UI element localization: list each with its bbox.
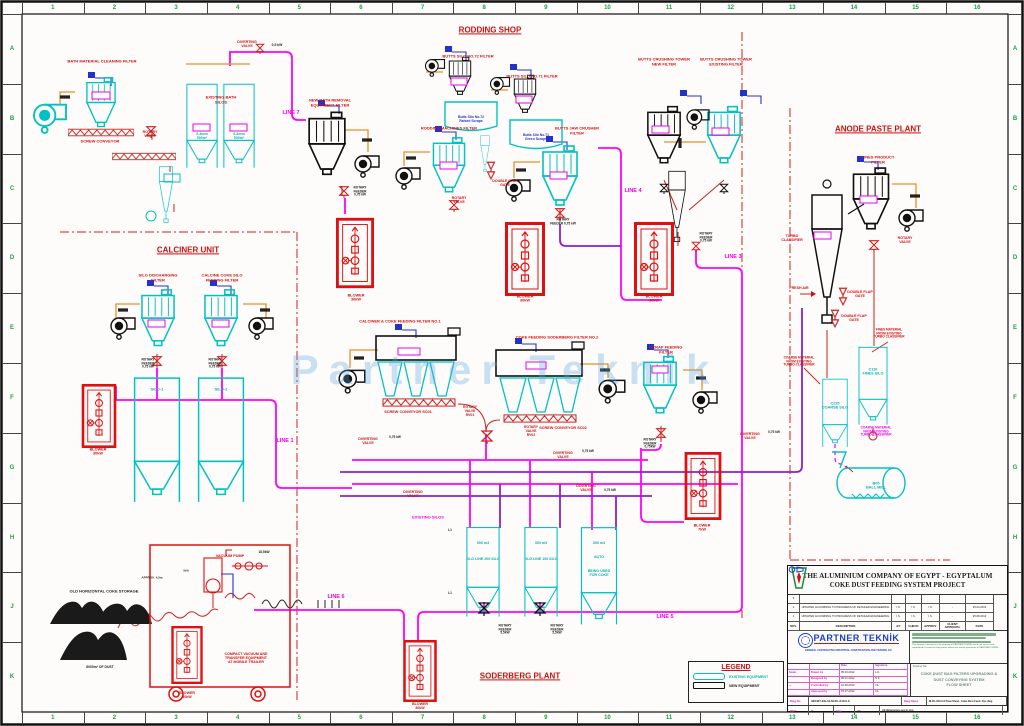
- pipe-orange: [60, 64, 916, 390]
- anode-paste-plant: [812, 168, 923, 498]
- revision-cell: [800, 595, 892, 604]
- revision-cell: 3: [788, 595, 800, 604]
- revision-cell: [892, 595, 906, 604]
- project-name: COKE DUST FEEDING SYSTEM PROJECT: [790, 582, 1005, 589]
- signature-cell: I.S.: [874, 690, 908, 696]
- drawing-sheet: Partner Teknik RODDING SHOPANODE PASTE P…: [0, 0, 1024, 726]
- bath-screw-conveyors: [68, 127, 176, 160]
- revision-cell: [922, 595, 940, 604]
- revision-cell: CLIENT APPROVAL: [940, 622, 966, 631]
- legend-item-label: NEW EQUIPMENT: [729, 684, 760, 688]
- signature-cell: [788, 690, 810, 696]
- revision-cell: I.S.: [892, 604, 906, 613]
- revision-cell: [906, 595, 922, 604]
- existing-swatch: [693, 673, 725, 680]
- revision-cell: 25.08.2012: [966, 613, 994, 622]
- new-swatch: [693, 682, 725, 689]
- pipe-black-wavy: [262, 600, 339, 608]
- revision-cell: CHECK: [906, 622, 922, 631]
- rodding-machines-filter: [396, 136, 495, 212]
- calciner-unit: [111, 290, 273, 502]
- revision-table: 32UPDATED ACCORDING TO PROGRESS OF DETAI…: [788, 595, 1007, 631]
- signature-table: DateSignatureScaleDrawn by05.03.2012L.K.…: [788, 664, 911, 696]
- firm-subtitle: GENERAL CONTRACTING INDUSTRIAL CONSTRUCT…: [790, 649, 907, 652]
- legend-item-label: EXISTING EQUIPMENT: [729, 675, 768, 679]
- signature-cell: 15.07.2012: [840, 690, 874, 696]
- dwg-name-label: Dwg Name: [902, 697, 927, 705]
- company-name: THE ALUMINIUM COMPANY OF EGYPT - EGYPTAL…: [790, 572, 1005, 580]
- revision-cell: REV.: [788, 622, 800, 631]
- revision-cell: I.S.: [922, 613, 940, 622]
- ball-mill: [832, 452, 905, 498]
- pipe-magenta-dashed: [835, 444, 851, 470]
- duct-dampers: [60, 97, 920, 378]
- vacuum-pump: [204, 550, 268, 593]
- revision-cell: -: [940, 604, 966, 613]
- new-bath-removal-filter: [256, 44, 379, 198]
- title-block: THE ALUMINIUM COMPANY OF EGYPT - EGYPTAL…: [787, 565, 1008, 712]
- revision-cell: DESCRIPTION: [800, 622, 892, 631]
- projection-icon: [1003, 706, 1007, 715]
- revision-cell: I.S.: [922, 604, 940, 613]
- coke-storage-piles: [50, 602, 152, 660]
- legend-box: LEGEND EXISTING EQUIPMENTNEW EQUIPMENT: [688, 661, 784, 703]
- globe-icon: [798, 633, 813, 648]
- ownership-note: This drawing / document is the property …: [912, 644, 1005, 649]
- revision-cell: DATE: [966, 622, 994, 631]
- revision-cell: I.S.: [906, 613, 922, 622]
- mobile-trailer: [150, 545, 290, 701]
- revision-cell: -: [940, 613, 966, 622]
- signature-cell: Approved by: [810, 690, 840, 696]
- revision-cell: I.S.: [892, 613, 906, 622]
- rev-label: REV: [788, 706, 809, 715]
- fresh-air-arrowhead: [811, 291, 816, 297]
- partner-teknik-watermark: Partner Teknik: [291, 346, 720, 394]
- dims-note: All dimensions are in mm: [880, 706, 1003, 715]
- drawing-title: COKE DUST BAG FILTERS UPGRADING & DUST C…: [913, 672, 1005, 689]
- firm-name: PARTNER TEKNİK: [814, 633, 900, 644]
- legend-item: EXISTING EQUIPMENT: [693, 673, 779, 680]
- revision-cell: [940, 595, 966, 604]
- revision-cell: UPDATED ACCORDING TO PROGRESS OF DETAILE…: [800, 613, 892, 622]
- size-value: A1: [855, 706, 880, 715]
- drawing-title-caption: Drawing Title: [913, 665, 1005, 668]
- revision-cell: BY: [892, 622, 906, 631]
- piping: [60, 46, 920, 640]
- dwg-no-value: 340407.EG.12.M.00–010.0.3: [809, 697, 902, 705]
- dwg-name-value: M.00–010.0.3 Flow Sheet_Coke Dust Feed. …: [927, 697, 1007, 705]
- legend-title: LEGEND: [693, 664, 779, 671]
- size-label: Size: [834, 706, 855, 715]
- revision-cell: [966, 595, 994, 604]
- revision-cell: I.S.: [906, 604, 922, 613]
- revision-cell: 1: [788, 613, 800, 622]
- butts-jaw-crusher-filter: [506, 146, 577, 220]
- dwg-no-label: Dwg No: [788, 697, 809, 705]
- existing-silos: [467, 528, 617, 625]
- revision-cell: 25.04.2013: [966, 604, 994, 613]
- rev-value: 2: [809, 706, 834, 715]
- butts-silo-filters: [426, 57, 563, 148]
- revision-cell: APPROV.: [922, 622, 940, 631]
- revision-cell: UPDATED ACCORDING TO PROGRESS OF DETAILE…: [800, 604, 892, 613]
- revision-cell: 2: [788, 604, 800, 613]
- legend-item: NEW EQUIPMENT: [693, 682, 779, 689]
